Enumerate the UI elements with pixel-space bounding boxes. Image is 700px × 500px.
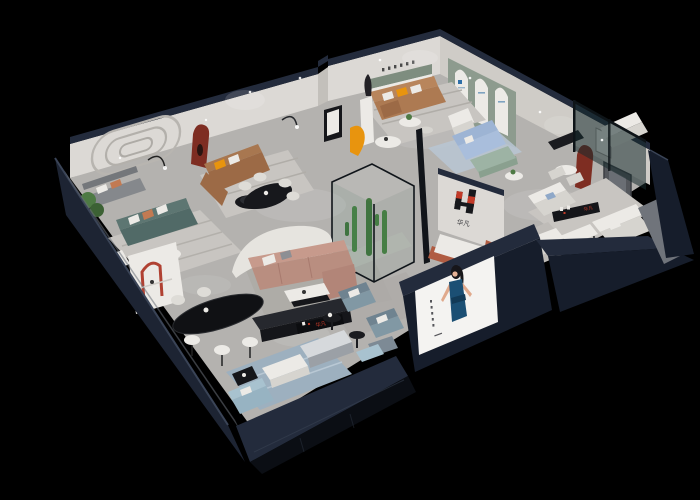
white-table-set — [375, 136, 401, 148]
showroom-svg: 华凡 — [0, 0, 700, 500]
spotlight — [299, 77, 302, 80]
spotlight — [205, 119, 207, 121]
white-chair — [279, 179, 292, 188]
white-chair — [171, 295, 185, 305]
table-tray — [242, 373, 246, 377]
spotlight — [379, 59, 382, 62]
stool-black — [349, 331, 365, 339]
table-decor — [204, 308, 209, 313]
arch-poster-text-line — [498, 101, 505, 103]
wall-glow — [225, 90, 265, 110]
logo-red-left — [456, 191, 463, 199]
showroom-render: 华凡 — [0, 0, 700, 500]
arch-poster-text-line — [458, 87, 465, 88]
lamp-glow — [295, 125, 299, 129]
white-chair — [287, 192, 300, 201]
shelf-decor — [150, 280, 154, 284]
arch-poster-text-line — [478, 92, 485, 94]
shelf-item — [560, 207, 563, 211]
model-face — [452, 271, 457, 276]
shelf-item-red — [564, 212, 566, 214]
white-chair — [197, 287, 211, 297]
shelf-item — [567, 206, 570, 210]
sign-item-red — [308, 323, 310, 325]
white-chair — [239, 182, 252, 191]
spotlight — [539, 111, 542, 114]
glass-frame-post — [573, 100, 576, 152]
table-decor — [264, 191, 268, 195]
lamp-glow — [163, 166, 167, 170]
arch-poster-logo-icon — [458, 80, 462, 84]
table-plant — [406, 114, 412, 120]
white-chair — [254, 173, 267, 182]
table-decor — [384, 137, 388, 141]
wall-glow — [402, 50, 438, 66]
table-tray — [328, 313, 332, 317]
glass-frame-mullion — [608, 119, 611, 171]
spotlight — [119, 157, 121, 159]
niche-sculpture — [197, 144, 203, 156]
table-plant — [511, 170, 516, 175]
wall-glow — [544, 116, 576, 134]
spotlight — [469, 77, 472, 80]
spotlight — [601, 139, 604, 142]
spotlight — [249, 91, 252, 94]
table-decor — [302, 290, 306, 294]
wall-picture-mat — [327, 109, 339, 136]
